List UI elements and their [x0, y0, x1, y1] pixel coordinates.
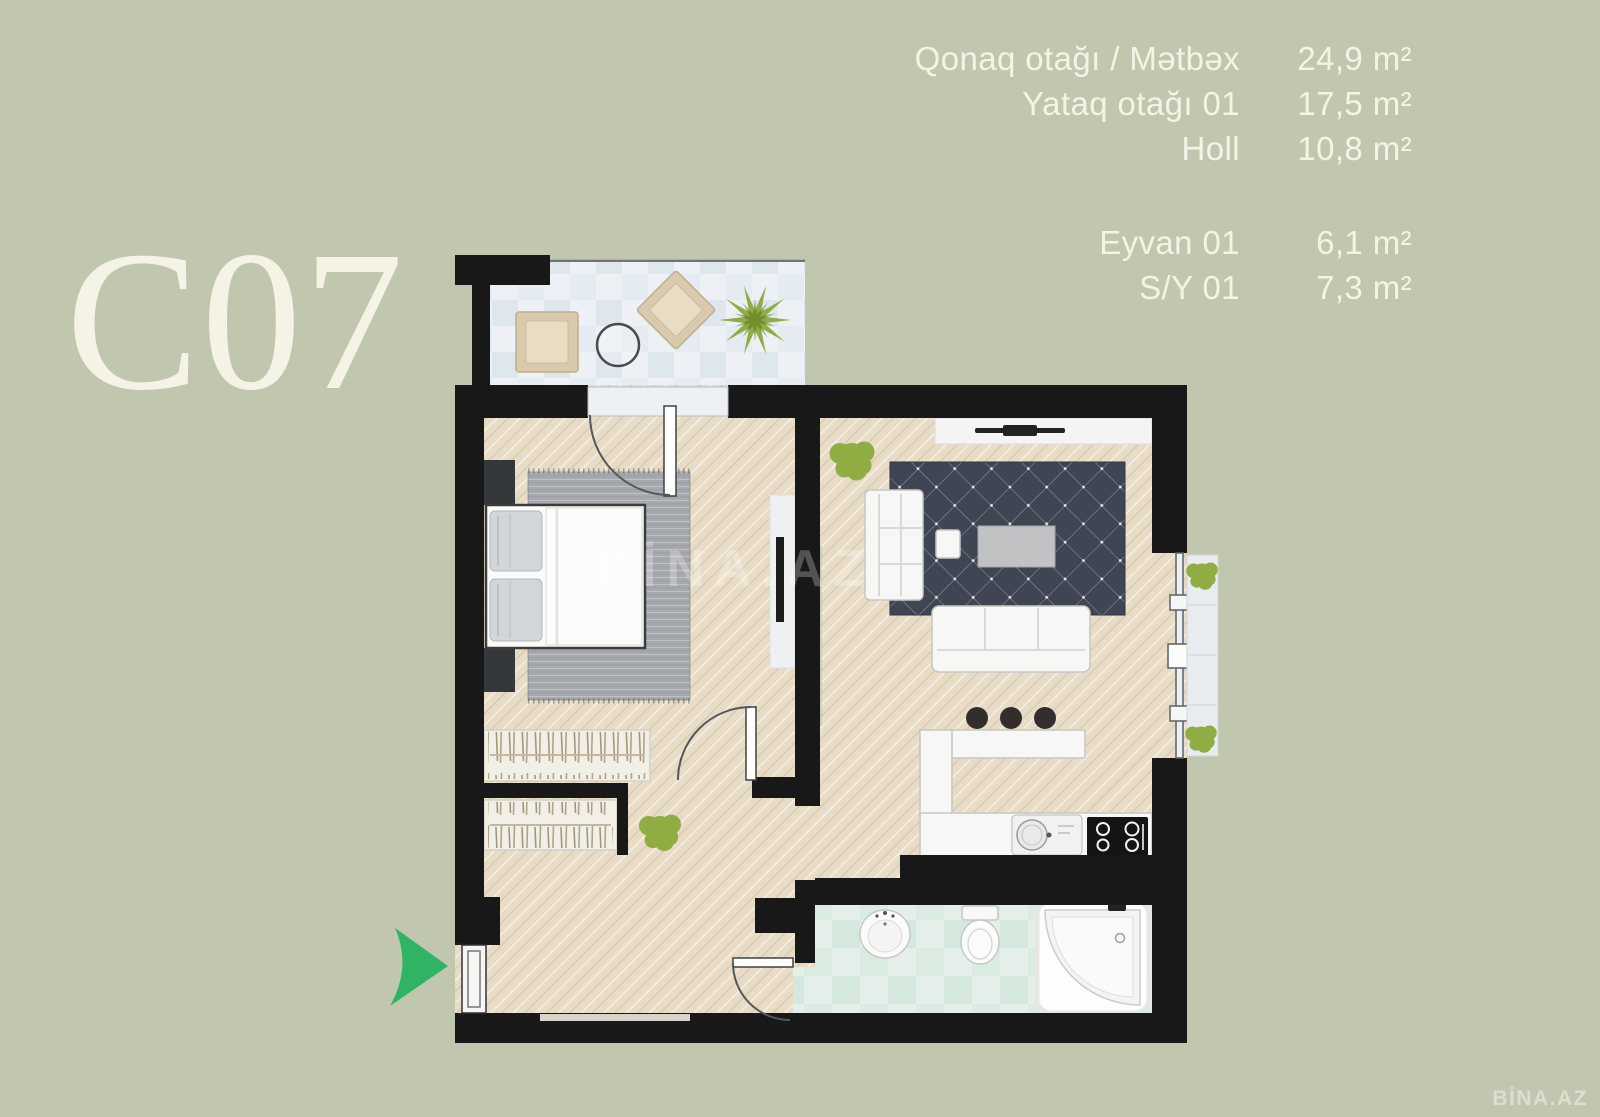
- room-area: 7,3 m²: [1240, 269, 1412, 307]
- floorplan-drawing: BİNA.AZ: [380, 248, 1230, 1048]
- watermark-center: BİNA.AZ: [595, 540, 876, 598]
- room-label: Qonaq otağı / Mətbəx: [832, 40, 1240, 78]
- legend-row: Qonaq otağı / Mətbəx 24,9 m²: [832, 36, 1412, 81]
- room-area: 17,5 m²: [1240, 85, 1412, 123]
- unit-title: C07: [66, 222, 405, 422]
- cooktop: [1087, 817, 1148, 856]
- room-area: 10,8 m²: [1240, 130, 1412, 168]
- side-table: [936, 530, 960, 558]
- bar-stool: [1000, 707, 1022, 729]
- legend-row: Yataq otağı 01 17,5 m²: [832, 81, 1412, 126]
- floorplan-page: { "title": "C07", "watermark": "BİNA.AZ"…: [0, 0, 1600, 1117]
- nightstand: [483, 460, 515, 505]
- balcony-chair: [516, 312, 578, 372]
- wardrobe: [484, 730, 650, 781]
- kitchen-counter: [920, 813, 1152, 857]
- bathroom-tiles: [793, 967, 815, 1013]
- room-label: Yataq otağı 01: [832, 85, 1240, 123]
- entry-arrow-icon: [390, 928, 448, 1006]
- coffee-table: [978, 526, 1055, 567]
- room-area: 6,1 m²: [1240, 224, 1412, 262]
- sink: [1012, 815, 1082, 855]
- bar-stool: [1034, 707, 1056, 729]
- bathroom: [793, 901, 1152, 1013]
- balcony-table: [597, 324, 639, 366]
- wardrobe: [484, 800, 617, 850]
- doorsill: [540, 1014, 690, 1021]
- legend-row: Holl 10,8 m²: [832, 126, 1412, 171]
- entry-door: [458, 944, 486, 1014]
- bathtub: [1037, 901, 1149, 1013]
- east-window: [1168, 553, 1218, 758]
- tv-console: [935, 418, 1152, 444]
- sofa: [932, 606, 1090, 672]
- nightstand: [483, 648, 515, 692]
- watermark-bottom-right: BİNA.AZ: [1492, 1087, 1588, 1111]
- toilet: [961, 906, 999, 964]
- bar-stool: [966, 707, 988, 729]
- room-label: Holl: [832, 130, 1240, 168]
- bathroom-sink: [860, 910, 910, 958]
- room-area: 24,9 m²: [1240, 40, 1412, 78]
